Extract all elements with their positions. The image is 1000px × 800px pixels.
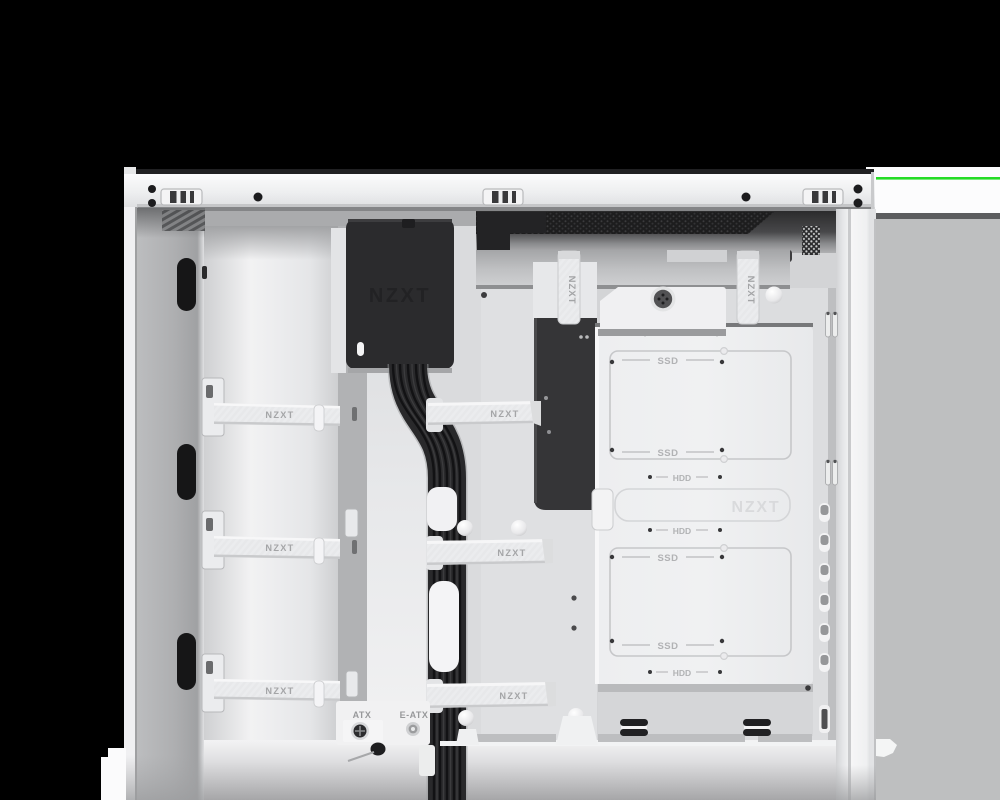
svg-text:NZXT: NZXT: [265, 686, 294, 696]
svg-text:NZXT: NZXT: [265, 543, 294, 553]
svg-text:NZXT: NZXT: [732, 499, 781, 516]
svg-text:SSD: SSD: [657, 553, 678, 564]
svg-text:NZXT: NZXT: [566, 276, 577, 305]
svg-text:SSD: SSD: [657, 356, 678, 367]
svg-text:E-ATX: E-ATX: [400, 710, 429, 720]
svg-text:NZXT: NZXT: [265, 410, 294, 420]
svg-text:NZXT: NZXT: [497, 548, 526, 558]
svg-text:SSD: SSD: [657, 641, 678, 652]
svg-text:HDD: HDD: [673, 473, 691, 483]
svg-text:NZXT: NZXT: [745, 276, 756, 305]
svg-text:NZXT: NZXT: [490, 409, 519, 419]
svg-text:HDD: HDD: [673, 526, 691, 536]
svg-text:SSD: SSD: [657, 448, 678, 459]
svg-text:ATX: ATX: [353, 710, 372, 720]
svg-text:NZXT: NZXT: [499, 691, 528, 701]
svg-text:NZXT: NZXT: [369, 285, 431, 307]
svg-text:HDD: HDD: [673, 668, 691, 678]
